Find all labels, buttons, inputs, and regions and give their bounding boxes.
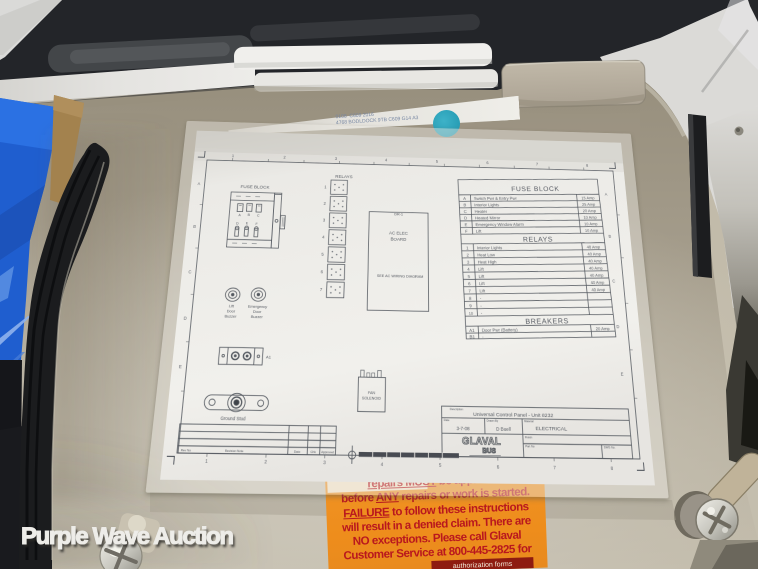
svg-text:2: 2 xyxy=(323,202,325,206)
svg-text:4: 4 xyxy=(385,158,387,162)
svg-text:A1: A1 xyxy=(266,355,271,360)
svg-text:Emergency: Emergency xyxy=(248,304,268,309)
svg-text:Universal Control Panel - Unit: Universal Control Panel - Unit 8232 xyxy=(473,411,554,418)
svg-text:Interior Lights: Interior Lights xyxy=(477,245,503,251)
svg-text:ELECTRICAL: ELECTRICAL xyxy=(535,425,568,432)
svg-text:SOLENOID: SOLENOID xyxy=(362,396,382,401)
svg-text:Buzzer: Buzzer xyxy=(251,315,264,320)
svg-text:1: 1 xyxy=(466,245,469,250)
svg-text:Door: Door xyxy=(253,309,263,314)
svg-text:Rev No: Rev No xyxy=(181,449,192,453)
svg-text:8: 8 xyxy=(586,164,588,168)
svg-text:SEE AC WIRING DIAGRAM: SEE AC WIRING DIAGRAM xyxy=(377,274,424,279)
svg-text:Switch Pwr & Entry Pwr: Switch Pwr & Entry Pwr xyxy=(474,196,518,201)
svg-text:9: 9 xyxy=(469,303,472,309)
svg-text:Date: Date xyxy=(294,450,301,454)
svg-text:FUSE BLOCK: FUSE BLOCK xyxy=(511,186,560,193)
svg-text:3: 3 xyxy=(335,157,337,161)
svg-text:40 Amp: 40 Amp xyxy=(588,259,602,263)
svg-text:1: 1 xyxy=(232,154,235,158)
svg-text:A1: A1 xyxy=(469,327,475,333)
svg-text:Heated Mirror: Heated Mirror xyxy=(475,215,501,220)
svg-text:Heater: Heater xyxy=(475,209,488,214)
svg-text:6: 6 xyxy=(321,270,323,274)
svg-text:7: 7 xyxy=(553,465,556,470)
svg-text:D Buell: D Buell xyxy=(496,426,511,432)
svg-text:15 Amp: 15 Amp xyxy=(581,196,595,200)
svg-text:25 Amp: 25 Amp xyxy=(582,203,596,207)
svg-text:2: 2 xyxy=(264,459,267,464)
svg-text:2: 2 xyxy=(283,156,285,160)
svg-text:5: 5 xyxy=(468,274,471,280)
svg-text:Heat Low: Heat Low xyxy=(477,252,495,258)
svg-text:7: 7 xyxy=(468,288,471,294)
svg-text:4: 4 xyxy=(381,462,384,467)
svg-text:40 Amp: 40 Amp xyxy=(590,281,604,286)
svg-text:BUS: BUS xyxy=(482,448,496,456)
svg-text:Revision Note: Revision Note xyxy=(225,449,245,453)
svg-text:D: D xyxy=(464,215,467,220)
svg-text:Interior Lights: Interior Lights xyxy=(474,202,499,207)
svg-text:5: 5 xyxy=(436,160,438,164)
svg-text:FAN: FAN xyxy=(368,390,376,395)
svg-text:6: 6 xyxy=(468,281,471,287)
svg-text:6: 6 xyxy=(497,465,500,470)
svg-text:8: 8 xyxy=(469,295,472,301)
svg-text:40 Amp: 40 Amp xyxy=(587,245,601,249)
svg-text:3-7-08: 3-7-08 xyxy=(456,425,469,431)
svg-text:40 Amp: 40 Amp xyxy=(589,266,603,270)
svg-text:BOARD: BOARD xyxy=(391,236,407,242)
svg-text:1: 1 xyxy=(205,459,208,464)
svg-text:Heat High: Heat High xyxy=(478,259,497,265)
svg-text:Drawn By: Drawn By xyxy=(487,419,500,423)
svg-text:10 Amp: 10 Amp xyxy=(585,229,599,233)
svg-text:6: 6 xyxy=(486,161,488,165)
svg-text:Door Pwr (Battery): Door Pwr (Battery) xyxy=(482,327,519,333)
svg-text:Material: Material xyxy=(524,420,534,424)
svg-text:DR-1: DR-1 xyxy=(394,212,403,216)
svg-text:E: E xyxy=(246,221,249,225)
svg-text:3: 3 xyxy=(323,460,326,465)
svg-text:Door: Door xyxy=(227,309,237,314)
svg-text:2: 2 xyxy=(466,252,469,257)
svg-text:Ground Stud: Ground Stud xyxy=(220,416,246,421)
svg-text:Finish: Finish xyxy=(525,437,533,440)
svg-text:GLAVAL: GLAVAL xyxy=(462,435,501,447)
svg-text:20 Amp: 20 Amp xyxy=(583,209,597,213)
svg-text:Date: Date xyxy=(444,419,451,423)
svg-text:5: 5 xyxy=(439,463,442,468)
svg-text:40 Amp: 40 Amp xyxy=(591,288,605,293)
svg-text:10: 10 xyxy=(469,311,474,316)
svg-text:B: B xyxy=(247,213,250,217)
svg-text:RELAYS: RELAYS xyxy=(335,174,353,180)
svg-text:B1: B1 xyxy=(469,334,475,340)
svg-text:40 Amp: 40 Amp xyxy=(587,252,601,256)
svg-text:F: F xyxy=(255,222,257,226)
svg-text:Part No: Part No xyxy=(525,445,535,449)
svg-text:3: 3 xyxy=(323,218,325,222)
svg-text:Description: Description xyxy=(450,408,464,412)
svg-text:8: 8 xyxy=(610,466,613,471)
svg-text:FUSE BLOCK: FUSE BLOCK xyxy=(240,184,269,190)
svg-text:AC ELEC: AC ELEC xyxy=(389,230,408,236)
svg-text:20 Amp: 20 Amp xyxy=(596,327,610,332)
svg-text:C: C xyxy=(464,209,467,214)
svg-text:5: 5 xyxy=(321,252,323,256)
svg-text:Approved: Approved xyxy=(321,451,335,455)
svg-text:Lift: Lift xyxy=(229,304,235,309)
svg-text:10 Amp: 10 Amp xyxy=(584,222,598,226)
svg-text:1: 1 xyxy=(324,185,326,189)
svg-text:Emergency Window Alarm: Emergency Window Alarm xyxy=(475,222,524,228)
svg-text:10 Amp: 10 Amp xyxy=(583,216,597,220)
svg-text:7: 7 xyxy=(536,162,538,166)
svg-text:RELAYS: RELAYS xyxy=(523,236,554,244)
svg-text:40 Amp: 40 Amp xyxy=(590,273,604,277)
svg-text:4: 4 xyxy=(322,235,324,239)
svg-text:DWG No.: DWG No. xyxy=(604,447,616,450)
svg-text:7: 7 xyxy=(320,288,323,293)
svg-text:3: 3 xyxy=(467,259,470,264)
svg-text:Buzzer: Buzzer xyxy=(224,314,237,319)
